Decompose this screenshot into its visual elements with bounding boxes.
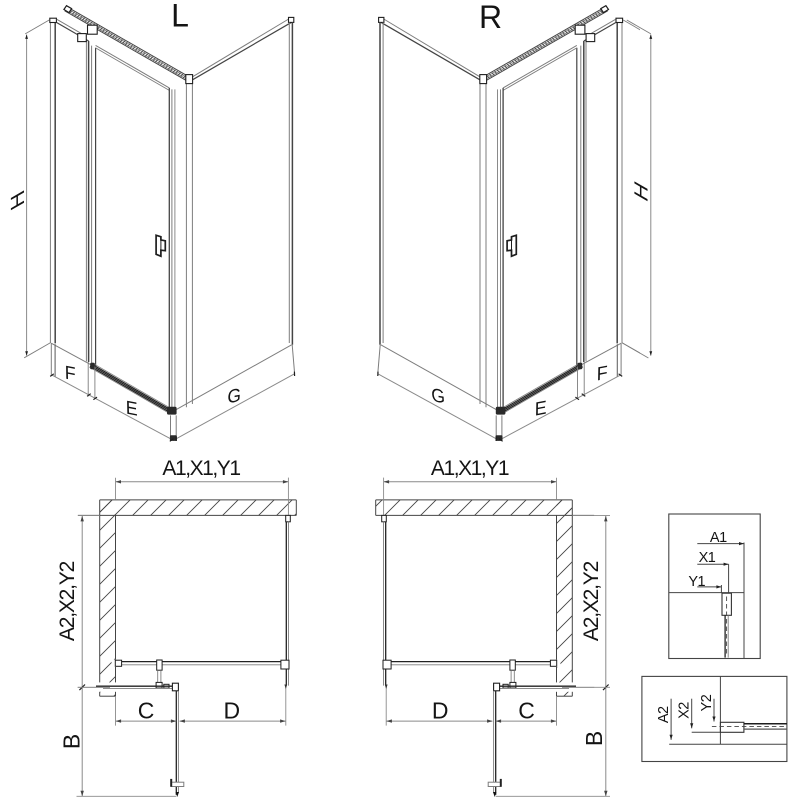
svg-text:D: D (223, 698, 240, 724)
svg-text:E: E (125, 396, 137, 420)
svg-text:F: F (597, 361, 608, 385)
svg-text:A2,X2,Y2: A2,X2,Y2 (56, 561, 79, 641)
svg-text:X2: X2 (677, 702, 693, 719)
svg-text:A2,X2,Y2: A2,X2,Y2 (580, 561, 603, 641)
svg-text:Y2: Y2 (699, 694, 715, 711)
svg-text:G: G (431, 383, 446, 407)
svg-text:A1,X1,Y1: A1,X1,Y1 (431, 457, 509, 480)
svg-text:G: G (227, 383, 242, 407)
svg-text:B: B (581, 731, 607, 746)
svg-text:C: C (138, 698, 155, 724)
svg-text:D: D (432, 698, 449, 724)
svg-text:A2: A2 (656, 706, 672, 723)
svg-text:F: F (64, 361, 75, 385)
svg-text:E: E (535, 396, 547, 420)
svg-text:X1: X1 (699, 550, 716, 566)
svg-text:A1: A1 (710, 530, 727, 546)
svg-text:C: C (518, 698, 535, 724)
svg-text:Y1: Y1 (688, 574, 705, 590)
svg-text:A1,X1,Y1: A1,X1,Y1 (162, 457, 240, 480)
svg-text:R: R (479, 0, 502, 35)
svg-text:L: L (171, 0, 189, 34)
svg-text:B: B (59, 734, 85, 749)
